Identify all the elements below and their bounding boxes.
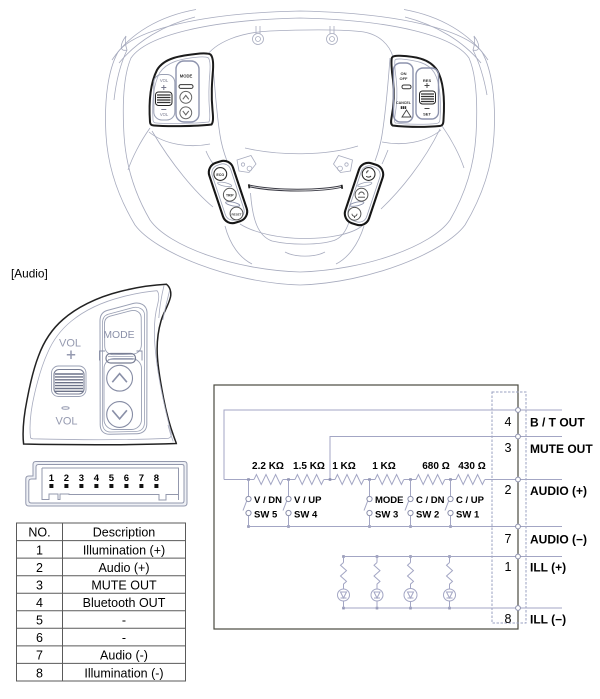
svg-text:NO.: NO.: [28, 526, 50, 540]
svg-text:MODE: MODE: [180, 74, 193, 79]
svg-text:Illumination (-): Illumination (-): [84, 666, 163, 680]
svg-text:▮▮▮: ▮▮▮: [401, 106, 407, 110]
svg-text:Audio (+): Audio (+): [98, 561, 149, 575]
svg-text:2.2 KΩ: 2.2 KΩ: [252, 461, 284, 472]
svg-text:4: 4: [94, 473, 100, 484]
svg-text:6: 6: [124, 473, 129, 484]
svg-text:2: 2: [64, 473, 69, 484]
svg-text:1.5 KΩ: 1.5 KΩ: [293, 461, 325, 472]
svg-text:TRIP: TRIP: [226, 194, 234, 198]
svg-text:ECO: ECO: [216, 173, 224, 177]
svg-text:4: 4: [36, 596, 43, 610]
svg-text:ILL (+): ILL (+): [530, 561, 566, 575]
svg-text:680 Ω: 680 Ω: [422, 461, 449, 472]
svg-text:3: 3: [79, 473, 84, 484]
svg-text:4: 4: [505, 415, 512, 429]
svg-text:SW 2: SW 2: [416, 510, 439, 521]
svg-text:8: 8: [154, 473, 159, 484]
svg-text:1: 1: [49, 473, 55, 484]
svg-text:-: -: [122, 614, 126, 628]
svg-text:6: 6: [36, 631, 43, 645]
svg-text:3: 3: [36, 579, 43, 593]
svg-text:Description: Description: [93, 526, 156, 540]
svg-text:SW 5: SW 5: [254, 510, 278, 521]
svg-text:-: -: [122, 631, 126, 645]
svg-text:MUTE OUT: MUTE OUT: [530, 442, 593, 456]
svg-text:1 KΩ: 1 KΩ: [332, 461, 356, 472]
svg-text:VOL: VOL: [160, 78, 169, 83]
svg-text:SET: SET: [423, 112, 431, 117]
svg-text:B / T OUT: B / T OUT: [530, 416, 585, 430]
svg-text:[Audio]: [Audio]: [11, 267, 48, 281]
svg-text:VOL: VOL: [55, 416, 77, 428]
svg-text:SW 1: SW 1: [456, 510, 480, 521]
svg-text:430 Ω: 430 Ω: [458, 461, 485, 472]
svg-text:RES: RES: [423, 78, 432, 83]
svg-text:VOL: VOL: [59, 338, 81, 350]
svg-text:V / UP: V / UP: [294, 495, 322, 506]
svg-text:MODE: MODE: [375, 495, 404, 506]
svg-text:3: 3: [505, 441, 512, 455]
svg-text:2: 2: [505, 483, 512, 497]
svg-text:8: 8: [505, 612, 512, 626]
svg-text:1 KΩ: 1 KΩ: [372, 461, 396, 472]
svg-text:VOL: VOL: [160, 112, 169, 117]
svg-text:8: 8: [36, 666, 43, 680]
svg-text:7: 7: [36, 649, 43, 663]
svg-text:7: 7: [139, 473, 144, 484]
svg-text:RESET: RESET: [231, 212, 241, 216]
svg-text:5: 5: [36, 614, 43, 628]
svg-text:OFF: OFF: [400, 76, 409, 81]
svg-text:C / UP: C / UP: [456, 495, 485, 506]
svg-text:ON: ON: [401, 71, 407, 76]
svg-text:C / DN: C / DN: [416, 495, 445, 506]
svg-text:MODE: MODE: [103, 330, 134, 341]
svg-text:ILL (−): ILL (−): [530, 613, 566, 627]
svg-text:AUDIO (−): AUDIO (−): [530, 533, 587, 547]
svg-text:SW 3: SW 3: [375, 510, 398, 521]
svg-text:AUDIO (+): AUDIO (+): [530, 484, 587, 498]
svg-text:CANCEL: CANCEL: [396, 101, 412, 105]
svg-text:1: 1: [36, 543, 43, 557]
svg-text:7: 7: [505, 532, 512, 546]
svg-text:V / DN: V / DN: [254, 495, 282, 506]
svg-text:Bluetooth OUT: Bluetooth OUT: [83, 596, 166, 610]
svg-text:2: 2: [36, 561, 43, 575]
svg-text:SW 4: SW 4: [294, 510, 318, 521]
svg-text:MUTE OUT: MUTE OUT: [91, 579, 157, 593]
svg-text:1: 1: [505, 560, 512, 574]
svg-text:5: 5: [109, 473, 115, 484]
svg-text:Audio (-): Audio (-): [100, 649, 148, 663]
svg-text:Illumination (+): Illumination (+): [83, 543, 165, 557]
